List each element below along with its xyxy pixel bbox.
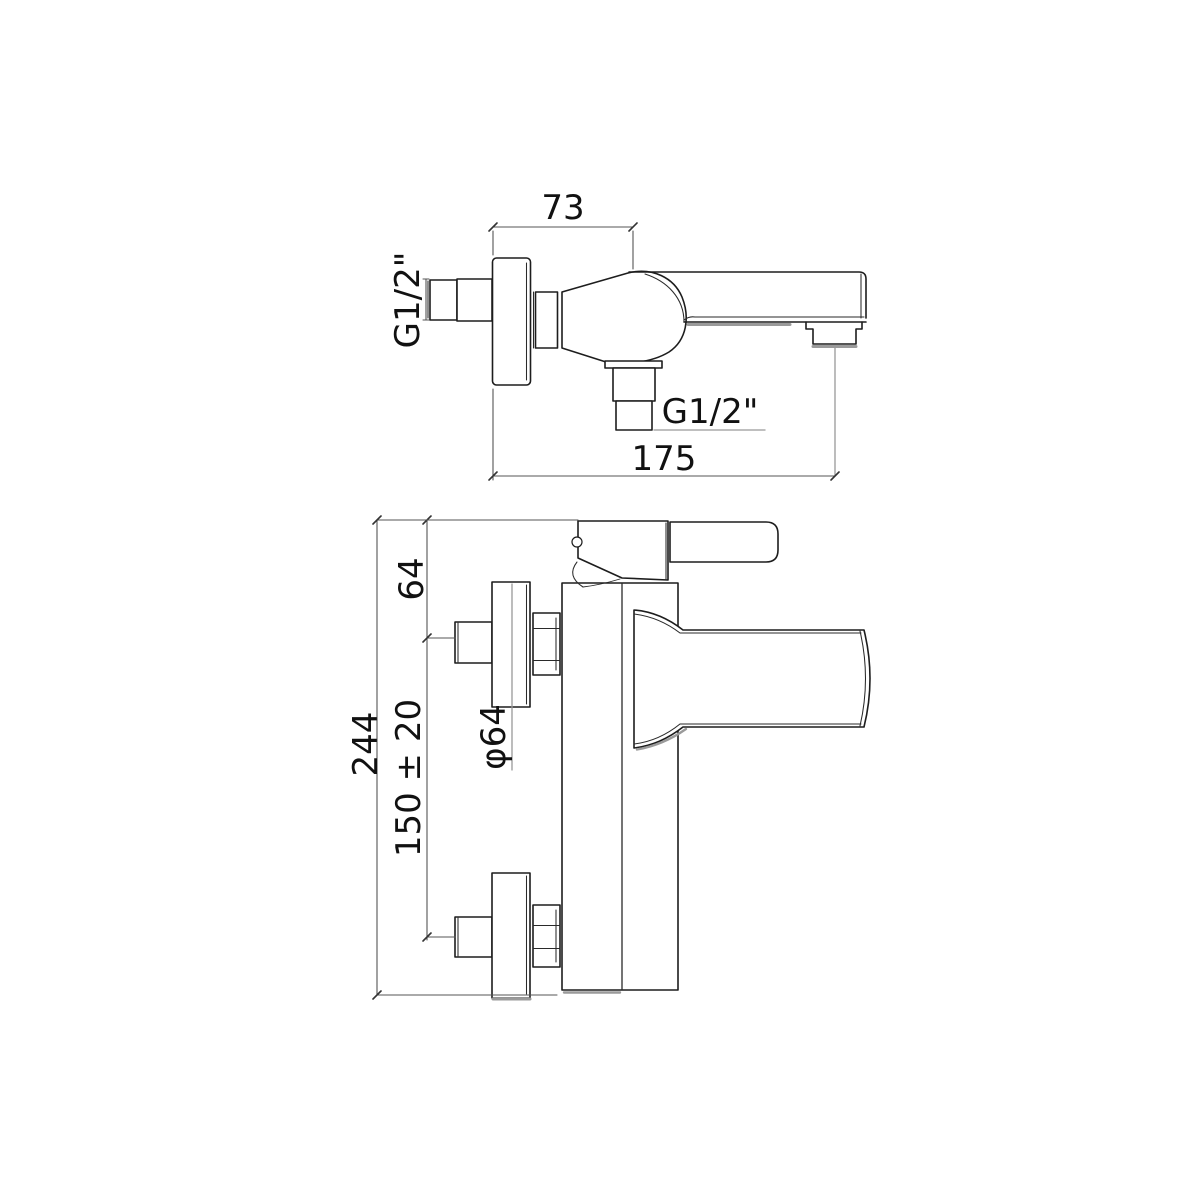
inlet-thread-label: G1/2"	[388, 252, 428, 349]
drawing-page: 73 G1/2"	[0, 0, 1200, 1200]
inlet-pipe-side: G1/2"	[388, 252, 492, 349]
dim-244-label: 244	[346, 712, 386, 777]
handle-screw-icon	[572, 537, 582, 547]
upper-wall-connector	[455, 582, 560, 707]
dim-phi64-label: φ64	[474, 704, 514, 770]
dim-73: 73	[489, 188, 637, 269]
spout-front	[634, 610, 870, 750]
handle-lever-front	[572, 521, 778, 587]
dim-64-label: 64	[392, 557, 432, 600]
body-neck-side	[534, 292, 558, 348]
technical-drawing-canvas: 73 G1/2"	[0, 0, 1200, 1200]
wall-plate-side	[493, 258, 531, 385]
dim-150-label: 150 ± 20	[389, 699, 429, 857]
lower-wall-connector	[455, 873, 560, 999]
upper-hex-nut	[533, 613, 560, 675]
dim-64-and-150: 64 150 ± 20	[389, 516, 455, 941]
mixer-body-side	[562, 271, 686, 363]
dim-175-label: 175	[632, 439, 697, 479]
bottom-outlet-pipe-side: G1/2"	[605, 361, 765, 432]
top-view-side-elevation: 73 G1/2"	[388, 188, 866, 480]
spout-outlet-side	[806, 322, 862, 347]
lower-hex-nut	[533, 905, 560, 967]
dim-73-label: 73	[541, 188, 584, 228]
outlet-thread-label: G1/2"	[662, 392, 759, 432]
front-view: φ64 64 150 ± 20 244	[346, 516, 870, 999]
